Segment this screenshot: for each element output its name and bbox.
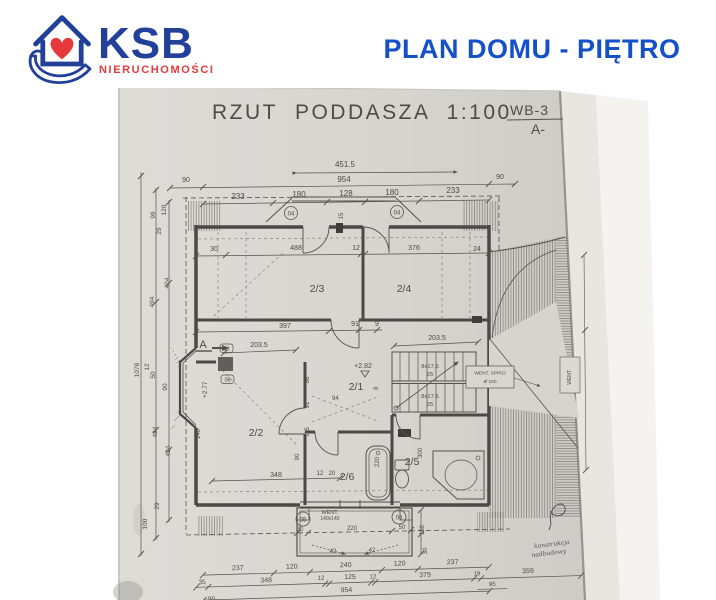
dim-label: 95 xyxy=(489,582,497,588)
dim-label: 359 xyxy=(522,568,534,575)
dim-label: 494 xyxy=(149,296,156,307)
dim-label: 42 xyxy=(330,549,337,555)
room-label: 2/4 xyxy=(397,283,412,295)
room-label: 2/6 xyxy=(340,471,355,483)
dim-label: 12 xyxy=(352,245,360,252)
dim-label: 203.5 xyxy=(250,342,268,349)
dim-label: 30 xyxy=(423,547,429,554)
page: { "header": { "brand": "KSB", "brand_sub… xyxy=(0,0,716,600)
dim-label: 379 xyxy=(419,572,431,579)
dim-label: 91 xyxy=(305,401,311,408)
brand-subtitle: NIERUCHOMOŚCI xyxy=(99,64,215,76)
dim-label: 120 xyxy=(161,204,168,215)
dim-label: 1078 xyxy=(134,362,141,377)
dim-label: 180 xyxy=(385,188,399,197)
dim-label: 15 xyxy=(339,212,345,219)
stair-riser-label: 8x17.6 xyxy=(421,394,438,400)
dim-label: 220 xyxy=(347,526,358,532)
dim-label: 488 xyxy=(290,245,302,252)
dim-label: 397 xyxy=(279,323,291,330)
dim-label: 240 xyxy=(340,562,352,569)
dim-label: 50 xyxy=(150,371,157,379)
dim-label: 30 xyxy=(210,246,218,253)
dim-label: 376 xyxy=(408,245,420,252)
dim-label: 90 xyxy=(295,453,301,460)
dim-label: 125 xyxy=(344,574,356,581)
company-logo: KSB NIERUCHOMOŚCI xyxy=(26,4,356,88)
dim-label: 451.5 xyxy=(335,160,356,169)
chimney-block xyxy=(336,223,343,233)
dim-label: 90 xyxy=(208,596,216,600)
header: KSB NIERUCHOMOŚCI PLAN DOMU - PIĘTRO xyxy=(0,0,716,88)
dim-label: 120 xyxy=(286,563,298,570)
dim-label: 24 xyxy=(473,246,481,253)
sheet-code-top: WB-3 xyxy=(510,102,549,118)
marker-label: 06 xyxy=(396,516,403,522)
dim-label: 98 xyxy=(305,376,311,383)
room-label: 2/1 xyxy=(349,381,364,393)
page-title: PLAN DOMU - PIĘTRO xyxy=(372,34,692,65)
stair-riser-label: 8x17.6 xyxy=(421,364,438,370)
stair-tread-label: 25 xyxy=(427,372,433,378)
stair-tread-label: 25 xyxy=(427,402,433,408)
dim-label: 494 xyxy=(152,426,159,437)
sheet-code-bottom: A- xyxy=(531,121,545,137)
floorplan-scan: RZUT PODDASZA 1:100 WB-3 A- 451.5 954 90… xyxy=(0,88,716,600)
drawing-title: RZUT PODDASZA 1:100 xyxy=(212,101,512,124)
dim-label: 140 xyxy=(196,428,202,439)
dim-label: 20 xyxy=(329,471,336,477)
eave-hatch xyxy=(198,516,224,536)
dim-label: 90 xyxy=(496,174,504,181)
roof-note: Ø 150 xyxy=(483,379,496,385)
dim-label: 348 xyxy=(270,472,282,479)
dim-label: 12 xyxy=(144,363,151,371)
dim-label: 220 xyxy=(375,456,381,467)
section-marker-label: A xyxy=(199,339,207,351)
dim-label: 424 xyxy=(164,277,171,288)
roof-note: WENT. SPIRO xyxy=(474,371,505,377)
room-label: 2/2 xyxy=(249,427,264,439)
dim-label: 233 xyxy=(446,186,460,195)
dim-label: 90 xyxy=(162,383,169,391)
brand-name: KSB xyxy=(98,22,194,66)
dim-label: 12 xyxy=(318,576,326,582)
dim-label: 19 xyxy=(474,571,482,577)
marker-label: 04 xyxy=(394,211,401,217)
dim-label: 94 xyxy=(332,396,339,402)
structural-column xyxy=(218,357,233,371)
dim-label: 300 xyxy=(418,447,424,458)
dim-label: 100 xyxy=(142,518,149,529)
dim-label: 50 xyxy=(399,525,406,531)
marker-label: 05 xyxy=(300,518,307,524)
dim-label: 954 xyxy=(337,175,351,184)
dim-label: 954 xyxy=(340,587,352,594)
dim-label: 120 xyxy=(394,560,406,567)
dim-label: 9 xyxy=(375,321,379,328)
dim-label: 233 xyxy=(231,192,245,201)
house-heart-hand-icon xyxy=(26,8,98,88)
dim-label: 12 xyxy=(317,471,324,477)
vent-note: 140x140 xyxy=(320,516,339,522)
dim-label: 91 xyxy=(351,321,359,328)
dim-label: 237 xyxy=(447,559,459,566)
dim-label: 29 xyxy=(156,227,163,235)
dim-label: 115 xyxy=(305,427,311,437)
wall-note: WENT. xyxy=(567,369,573,385)
room-label: 2/3 xyxy=(310,283,325,295)
dim-label: 237 xyxy=(232,565,244,572)
dim-label: 424 xyxy=(165,445,172,456)
level-label: +2.82 xyxy=(354,363,372,370)
dim-label: 29 xyxy=(154,502,161,510)
dim-label: 35 xyxy=(198,579,206,586)
dim-label: 348 xyxy=(260,577,272,584)
dim-label: 203.5 xyxy=(428,335,446,342)
level-label: +2.77 xyxy=(202,381,209,398)
marker-label: 08 xyxy=(223,347,229,353)
dim-label: 90 xyxy=(182,177,190,184)
floorplan-drawing: RZUT PODDASZA 1:100 WB-3 A- 451.5 954 90… xyxy=(0,88,716,600)
dim-label: 42 xyxy=(369,548,376,554)
wall-annotation: WENT. xyxy=(560,357,580,393)
marker-label: 08 xyxy=(224,378,230,384)
dim-label: 99 xyxy=(150,211,157,219)
marker-label: 04 xyxy=(288,212,295,218)
chimney-block xyxy=(472,316,482,323)
